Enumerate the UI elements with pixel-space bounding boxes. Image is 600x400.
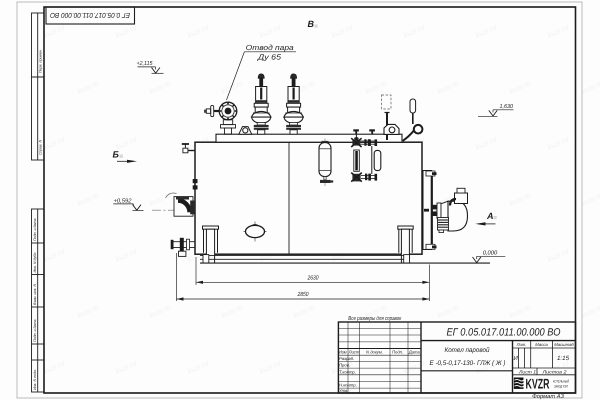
- svg-text:ЗАВОД РЭП: ЗАВОД РЭП: [554, 385, 568, 389]
- svg-text:Ду 65: Ду 65: [257, 52, 282, 61]
- svg-text:Т.контр.: Т.контр.: [339, 369, 356, 374]
- svg-text:И: И: [514, 355, 519, 362]
- svg-text:Пров.: Пров.: [339, 363, 350, 368]
- svg-text:Подп.: Подп.: [392, 350, 403, 355]
- svg-text:Листов 2: Листов 2: [541, 369, 567, 374]
- svg-text:Перв. примен.: Перв. примен.: [39, 49, 43, 73]
- svg-text:Подп. и дата: Подп. и дата: [33, 320, 37, 343]
- svg-text:2850: 2850: [297, 291, 309, 298]
- svg-text:Масса: Масса: [535, 342, 548, 347]
- svg-text:В: В: [308, 19, 315, 29]
- svg-text:Разраб.: Разраб.: [339, 356, 354, 361]
- svg-text:Изм: Изм: [339, 350, 347, 355]
- svg-text:+2,115: +2,115: [137, 60, 154, 67]
- svg-text:Котел паровой: Котел паровой: [445, 347, 490, 354]
- svg-text:Б: Б: [113, 150, 120, 160]
- svg-text:1,630: 1,630: [500, 103, 514, 110]
- svg-text:KVZR: KVZR: [526, 375, 550, 391]
- svg-text:1:15: 1:15: [557, 355, 570, 362]
- svg-text:2630: 2630: [307, 275, 319, 282]
- svg-text:Подп. и дата: Подп. и дата: [33, 219, 37, 242]
- svg-text:Лист 1: Лист 1: [518, 369, 537, 374]
- svg-text:Дата: Дата: [408, 350, 421, 355]
- svg-text:Инв. N дубл.: Инв. N дубл.: [33, 252, 37, 273]
- svg-text:Масштаб: Масштаб: [554, 342, 574, 347]
- svg-text:0,000: 0,000: [483, 250, 498, 257]
- svg-text:ЕГ 0.05.017.011.00.000 ВО: ЕГ 0.05.017.011.00.000 ВО: [49, 11, 130, 18]
- svg-text:Лит.: Лит.: [516, 342, 527, 347]
- svg-text:Взам. инв. N: Взам. инв. N: [33, 284, 37, 305]
- svg-text:КОТЕЛЬНЫЙ: КОТЕЛЬНЫЙ: [553, 379, 569, 384]
- svg-text:Лист: Лист: [348, 350, 360, 355]
- svg-text:Все размеры для справок: Все размеры для справок: [348, 315, 401, 322]
- svg-text:Утв.: Утв.: [339, 388, 349, 393]
- svg-text:Н.контр.: Н.контр.: [339, 382, 357, 387]
- svg-text:Е -0,5-0,17-130- ГЛЖ ( Ж ): Е -0,5-0,17-130- ГЛЖ ( Ж ): [430, 360, 506, 367]
- svg-text:Формат А3: Формат А3: [532, 393, 564, 400]
- svg-text:Инв. N подл.: Инв. N подл.: [33, 369, 37, 390]
- svg-text:Отвод пара: Отвод пара: [246, 43, 294, 52]
- svg-text:N докум.: N докум.: [366, 350, 383, 355]
- svg-text:ЕГ 0.05.017.011.00.000 ВО: ЕГ 0.05.017.011.00.000 ВО: [447, 327, 561, 339]
- svg-text:Справ. N: Справ. N: [39, 140, 43, 155]
- svg-text:А: А: [486, 211, 494, 221]
